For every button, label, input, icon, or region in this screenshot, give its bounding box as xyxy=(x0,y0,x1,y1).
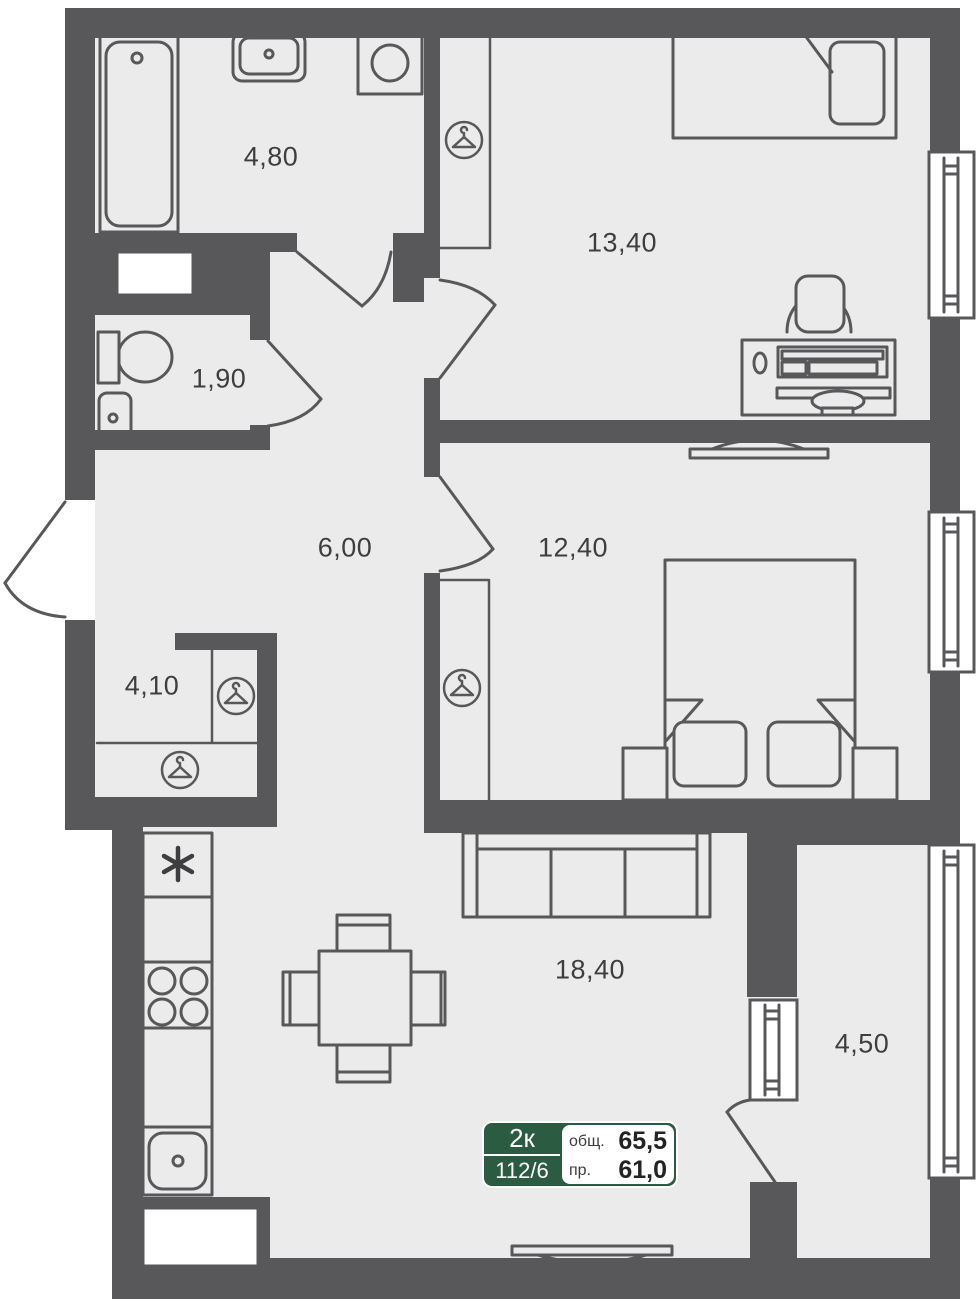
bathtub xyxy=(100,36,178,232)
total-area-value: 65,5 xyxy=(618,1127,667,1156)
bathroom-sink xyxy=(233,33,305,81)
desk-chair xyxy=(787,276,851,332)
room-area-label-bedroom-1: 13,40 xyxy=(587,228,657,259)
room-area-label-bedroom-2: 12,40 xyxy=(538,533,608,564)
floor-plan: 4,80 13,40 1,90 6,00 12,40 4,10 18,40 4,… xyxy=(0,0,976,1299)
unit-badge-areas: общ. 65,5 пр. 61,0 xyxy=(562,1125,674,1184)
dining-chair-top xyxy=(337,915,390,952)
desk xyxy=(742,340,895,415)
living-area-label: пр. xyxy=(569,1162,591,1180)
window-bedroom-2 xyxy=(929,512,974,672)
total-area-row: общ. 65,5 xyxy=(569,1127,667,1156)
unit-badge-left: 2к 112/6 xyxy=(484,1123,560,1186)
entrance-door-swing xyxy=(5,502,65,617)
ventilation-duct xyxy=(143,1208,258,1266)
room-area-label-wardrobe: 4,10 xyxy=(125,671,180,702)
window-bedroom-1 xyxy=(929,152,974,318)
exterior-space xyxy=(0,830,112,1299)
nightstand-left xyxy=(623,748,667,800)
nightstand-right xyxy=(853,748,897,800)
room-area-label-hallway: 6,00 xyxy=(318,533,373,564)
total-area-label: общ. xyxy=(569,1133,605,1151)
living-area-value: 61,0 xyxy=(618,1156,667,1185)
stove xyxy=(143,962,212,1028)
room-area-label-balcony: 4,50 xyxy=(835,1029,890,1060)
dining-chair-left xyxy=(283,972,319,1025)
kitchen-counter-2 xyxy=(143,1028,212,1127)
floor-plan-svg xyxy=(0,0,976,1299)
living-area-row: пр. 61,0 xyxy=(569,1156,667,1185)
kitchen-sink xyxy=(143,1127,212,1195)
kitchen-counter xyxy=(143,897,212,962)
washing-machine xyxy=(358,33,422,94)
room-area-label-bathroom: 4,80 xyxy=(244,142,299,173)
fridge xyxy=(143,833,212,897)
dining-chair-bottom xyxy=(337,1045,390,1082)
sofa xyxy=(463,833,710,917)
window-balcony xyxy=(929,845,974,1178)
room-area-label-living-kitchen: 18,40 xyxy=(555,955,625,986)
ventilation-duct xyxy=(117,252,193,295)
unit-number: 112/6 xyxy=(484,1156,560,1186)
window-balcony-door-block xyxy=(750,1000,797,1100)
double-bed xyxy=(665,560,855,800)
entrance-opening xyxy=(65,500,95,620)
room-area-label-wc: 1,90 xyxy=(192,364,247,395)
unit-info-badge[interactable]: 2к 112/6 общ. 65,5 пр. 61,0 xyxy=(482,1121,678,1188)
toilet xyxy=(98,332,172,383)
single-bed xyxy=(673,33,896,138)
unit-rooms-count: 2к xyxy=(484,1123,560,1154)
